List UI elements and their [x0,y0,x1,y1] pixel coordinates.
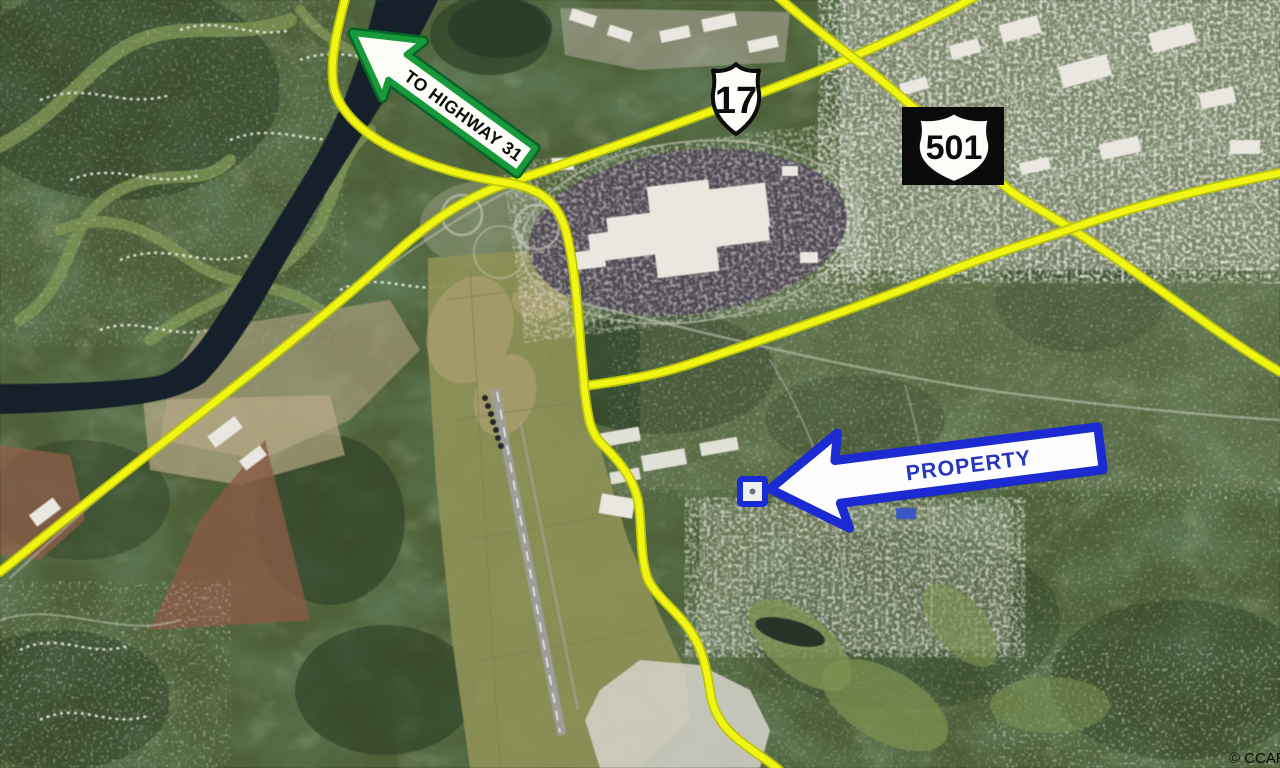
river-bank-forest [448,0,552,58]
property-marker [740,479,765,504]
residential-bottomleft [0,590,220,768]
listing-map-photo: 17 501 TO HIGHWAY 31 PROPERTY © CCAR [0,0,1280,768]
route-17-number: 17 [715,80,757,122]
route-shield-501: 501 [902,107,1004,185]
terrain-layer [0,0,1280,768]
copyright-credit: © CCAR [1229,750,1280,767]
route-501-number: 501 [926,129,983,167]
satellite-map: 17 501 TO HIGHWAY 31 PROPERTY © CCAR [0,0,1280,768]
